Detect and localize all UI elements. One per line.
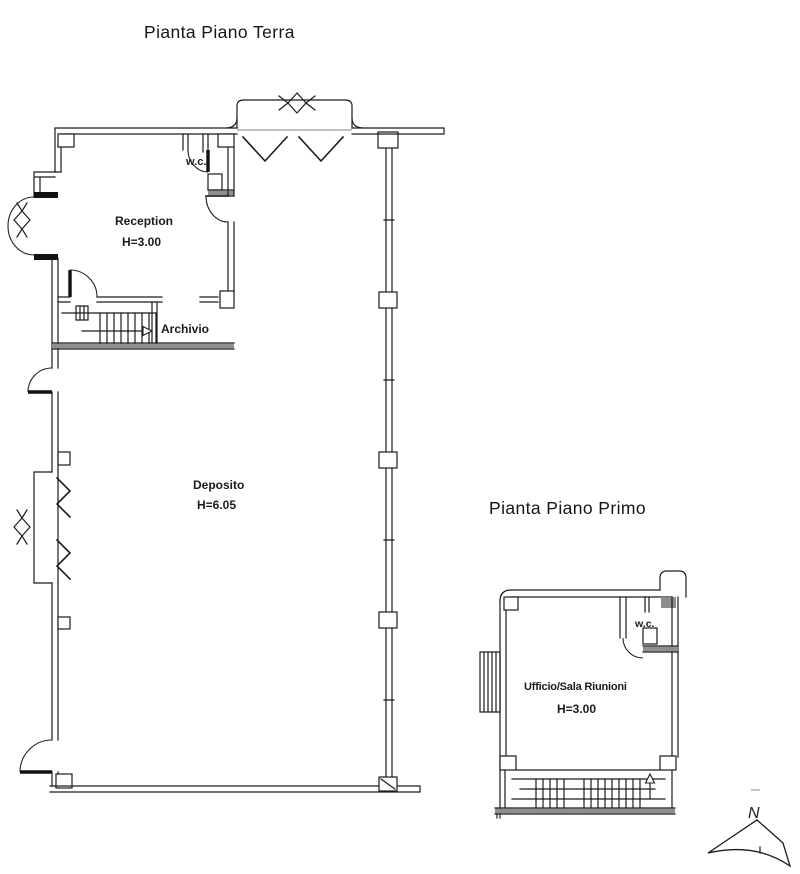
pillar (660, 756, 676, 770)
wall-tab (660, 571, 686, 597)
first-floor-title: Pianta Piano Primo (489, 498, 646, 518)
door-swing-arc (623, 638, 643, 658)
door-direction-diamond-icon (14, 510, 30, 544)
deposito-height-label: H=6.05 (197, 498, 236, 512)
ground-floor-title: Pianta Piano Terra (144, 22, 295, 42)
door-stub (34, 254, 58, 260)
pillar (504, 597, 518, 610)
pillar (500, 756, 516, 770)
north-arrow-shape-icon (708, 820, 790, 866)
reception-height-label: H=3.00 (122, 235, 161, 249)
wc-label: w.c. (634, 618, 655, 630)
first-floor-plan: Pianta Piano Primo w.c. Ufficio/Sala Riu… (480, 498, 686, 818)
stair-run-lines (512, 779, 665, 799)
wc-partitions (183, 134, 208, 152)
staircase-ground: Archivio (52, 270, 234, 349)
wall-left-lower-mid (52, 392, 58, 472)
pillar (220, 291, 234, 308)
wall-left-mid (52, 258, 58, 368)
door-left-mid (28, 368, 52, 392)
stair-risers-left (536, 779, 564, 808)
wall-left-lower (52, 583, 58, 740)
pillar (218, 134, 234, 147)
window-louvers (484, 652, 496, 712)
canopy-outline (237, 100, 352, 128)
reception-right-wall (206, 148, 234, 308)
wc-fixture (208, 174, 222, 190)
door-swing-arc (20, 740, 52, 772)
pillar (58, 134, 74, 147)
door-direction-diamond-icon (14, 203, 30, 237)
pillar (58, 617, 70, 629)
floor-plan-sheet: Pianta Piano Terra (0, 0, 800, 874)
door-swing-arc (28, 368, 52, 392)
pillar (379, 452, 397, 468)
wall-block (661, 597, 676, 608)
wc-label: w.c. (185, 156, 206, 168)
entrance-canopy (227, 93, 362, 161)
double-door-left (8, 192, 58, 260)
canopy-flares (227, 118, 362, 128)
window-frame (480, 652, 500, 712)
folding-gate (14, 472, 70, 583)
reception-label: Reception (115, 214, 173, 228)
ufficio-height-label: H=3.00 (557, 702, 596, 716)
wall-bottom (50, 786, 420, 792)
door-direction-diamond-icon (279, 93, 315, 113)
pillar (379, 612, 397, 628)
north-label: N (748, 805, 760, 822)
door-swing-arc (70, 270, 97, 297)
wall-top (500, 590, 672, 601)
wall-lines (228, 148, 234, 291)
pillar (58, 452, 70, 465)
deposito-label: Deposito (193, 478, 244, 492)
folding-door-chevrons-icon (243, 137, 343, 161)
door-swing-arcs (8, 197, 34, 255)
ground-floor-plan: Pianta Piano Terra (8, 22, 444, 792)
wc-fixture (643, 628, 657, 644)
door-swing-arc (206, 196, 228, 222)
ufficio-label: Ufficio/Sala Riunioni (524, 681, 627, 693)
pillar (379, 292, 397, 308)
wall-right (378, 132, 398, 791)
stair-top-wall (58, 297, 218, 302)
door-stub (34, 192, 58, 198)
gate-frame (34, 472, 58, 583)
archivio-label: Archivio (161, 322, 209, 336)
staircase-first (495, 756, 676, 814)
stair-direction-arrow-icon (143, 327, 152, 336)
folding-door-chevrons-icon (57, 478, 70, 579)
stair-risers-right (584, 779, 640, 808)
window-left (480, 652, 500, 712)
door-bottom-left (20, 740, 58, 786)
wall-right (672, 597, 678, 757)
floor-plan-drawing: Pianta Piano Terra (0, 0, 800, 874)
north-arrow: N (708, 790, 790, 866)
